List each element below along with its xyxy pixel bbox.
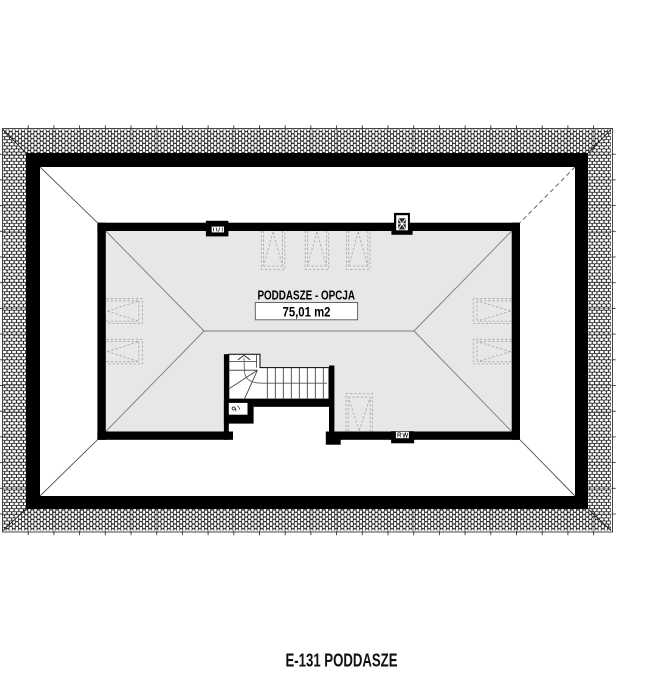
svg-text:75,01 m2: 75,01 m2 (283, 304, 331, 319)
svg-text:PODDASZE - OPCJA: PODDASZE - OPCJA (257, 288, 355, 303)
svg-text:E-131 PODDASZE: E-131 PODDASZE (286, 650, 398, 671)
